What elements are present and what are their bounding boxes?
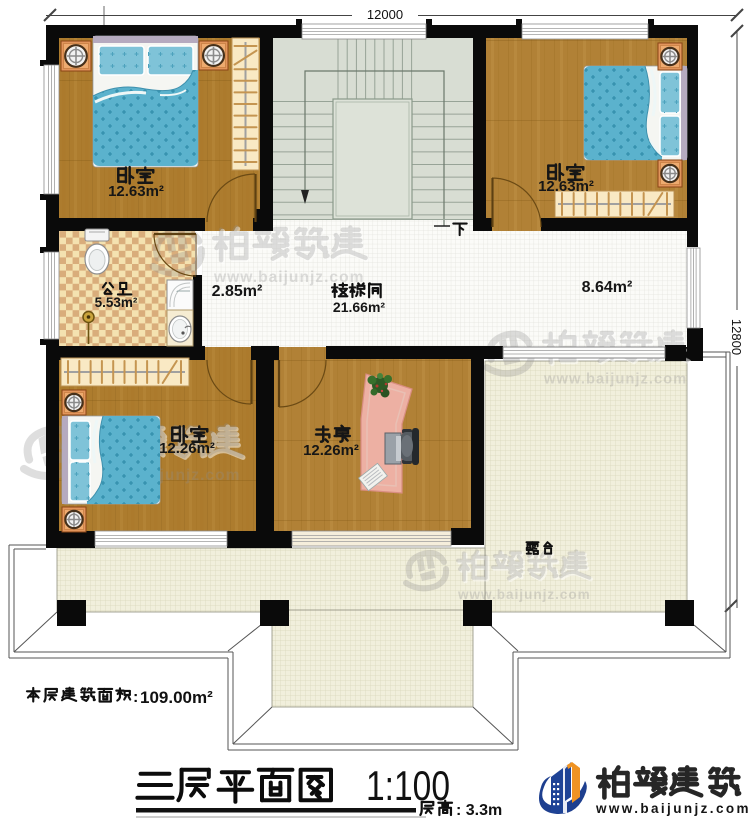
svg-text:www.baijunjz.com: www.baijunjz.com	[543, 371, 687, 387]
svg-text:12800: 12800	[729, 319, 744, 355]
svg-text:21.66m²: 21.66m²	[333, 299, 385, 315]
svg-text:2.85m²: 2.85m²	[212, 283, 263, 300]
svg-text:5.53m²: 5.53m²	[95, 295, 138, 310]
svg-text:12.26m²: 12.26m²	[159, 440, 215, 457]
svg-text:12.26m²: 12.26m²	[303, 442, 359, 459]
svg-text:1:100: 1:100	[366, 762, 450, 809]
svg-text:12.63m²: 12.63m²	[538, 178, 594, 195]
svg-text:www.baijunjz.com: www.baijunjz.com	[457, 587, 591, 602]
svg-text:8.64m²: 8.64m²	[582, 279, 633, 296]
svg-text:12000: 12000	[367, 7, 403, 22]
svg-text::: :	[133, 689, 138, 706]
svg-text:www.baijunjz.com: www.baijunjz.com	[595, 801, 750, 816]
svg-text:: 3.3m: : 3.3m	[456, 802, 502, 819]
svg-text:109.00m²: 109.00m²	[140, 688, 213, 707]
svg-text:12.63m²: 12.63m²	[108, 183, 164, 200]
